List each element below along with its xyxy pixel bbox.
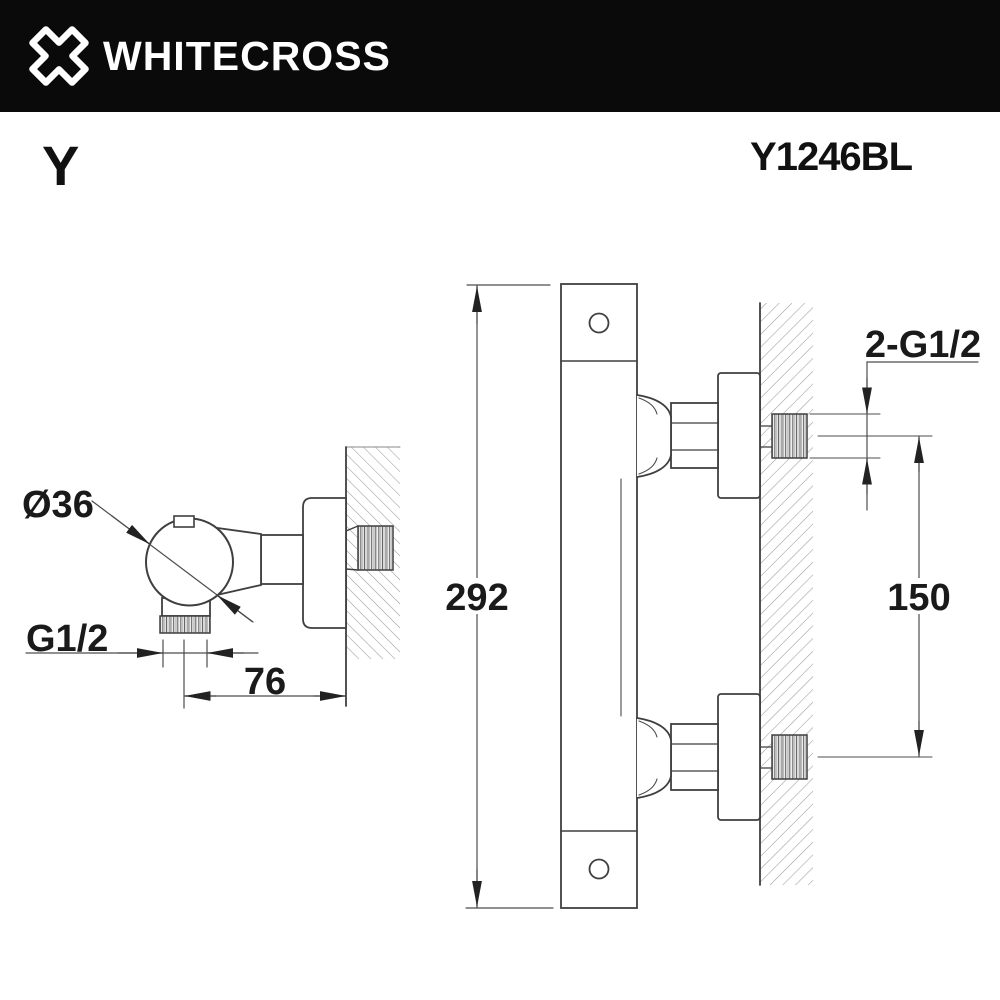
side-view-wall-hatch: [346, 447, 400, 706]
front-view-bottom-bell: [637, 718, 671, 798]
front-view-top-screw-hole: [590, 314, 609, 333]
front-view-bottom-nut: [671, 724, 718, 790]
front-view-bottom-flange: [718, 694, 760, 820]
label-body-height: 292: [445, 577, 508, 619]
side-view-knob: [146, 519, 233, 606]
front-view-top-flange: [718, 373, 760, 498]
product-drawing-page: WHITECROSS Y Y1246BL: [0, 0, 1000, 1000]
side-view-flange: [303, 498, 346, 628]
side-view-knob-button: [174, 516, 194, 527]
label-inlet-threads: 2-G1/2: [865, 324, 981, 366]
front-view-bottom-screw-hole: [590, 860, 609, 879]
front-view-bar: [561, 284, 637, 908]
label-inlet-spacing: 150: [887, 577, 950, 619]
label-knob-diameter: Ø36: [22, 484, 94, 526]
front-view: 292 2-G1/2 150: [444, 284, 981, 908]
side-view: Ø36 G1/2 76: [22, 447, 400, 708]
front-view-wall-hatch: [760, 303, 813, 885]
technical-drawing: Ø36 G1/2 76: [0, 0, 1000, 1000]
front-view-top-bell: [637, 395, 671, 477]
label-wall-offset: 76: [244, 661, 286, 703]
front-view-top-nut: [671, 403, 718, 468]
label-outlet-thread: G1/2: [26, 618, 108, 660]
